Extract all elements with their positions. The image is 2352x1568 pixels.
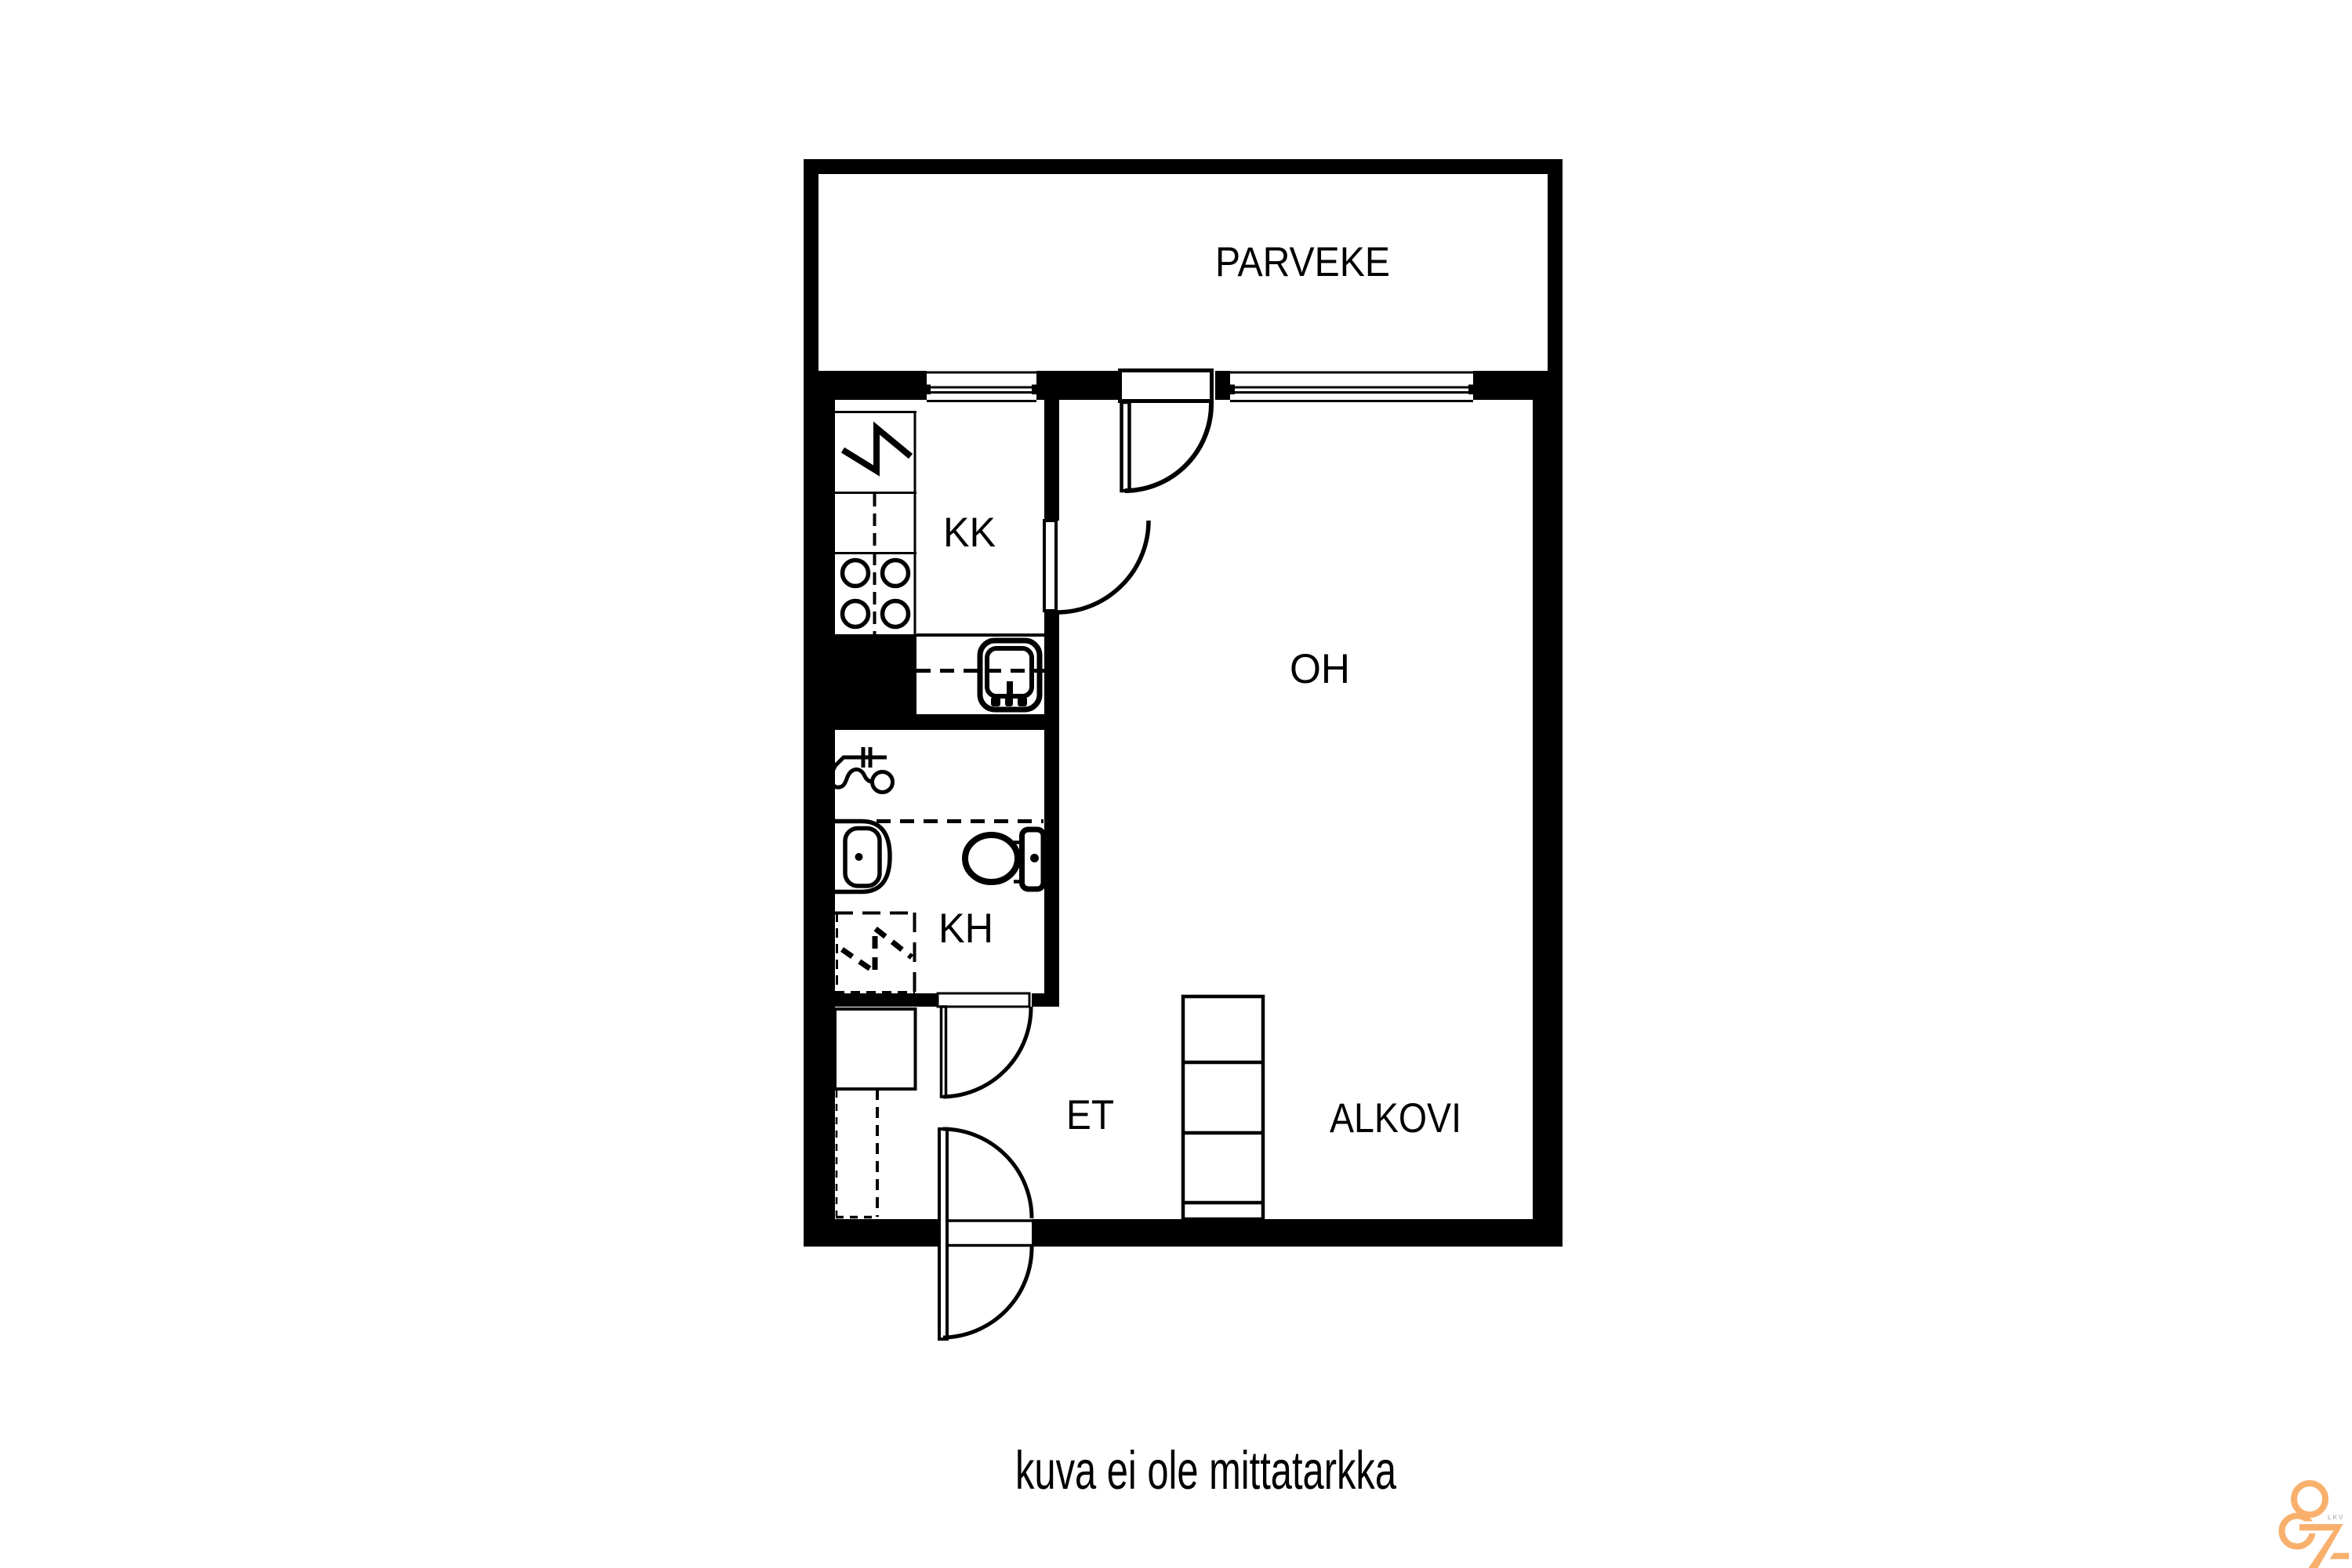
svg-text:LKV: LKV	[2328, 1514, 2345, 1521]
svg-text:OH: OH	[1290, 646, 1350, 692]
svg-text:ALKOVI: ALKOVI	[1330, 1095, 1461, 1142]
svg-text:PARVEKE: PARVEKE	[1215, 239, 1390, 285]
svg-text:kuva ei ole mittatarkka: kuva ei ole mittatarkka	[1015, 1440, 1396, 1501]
svg-text:ET: ET	[1066, 1092, 1114, 1138]
svg-text:KH: KH	[938, 906, 993, 952]
svg-text:KK: KK	[943, 510, 996, 556]
